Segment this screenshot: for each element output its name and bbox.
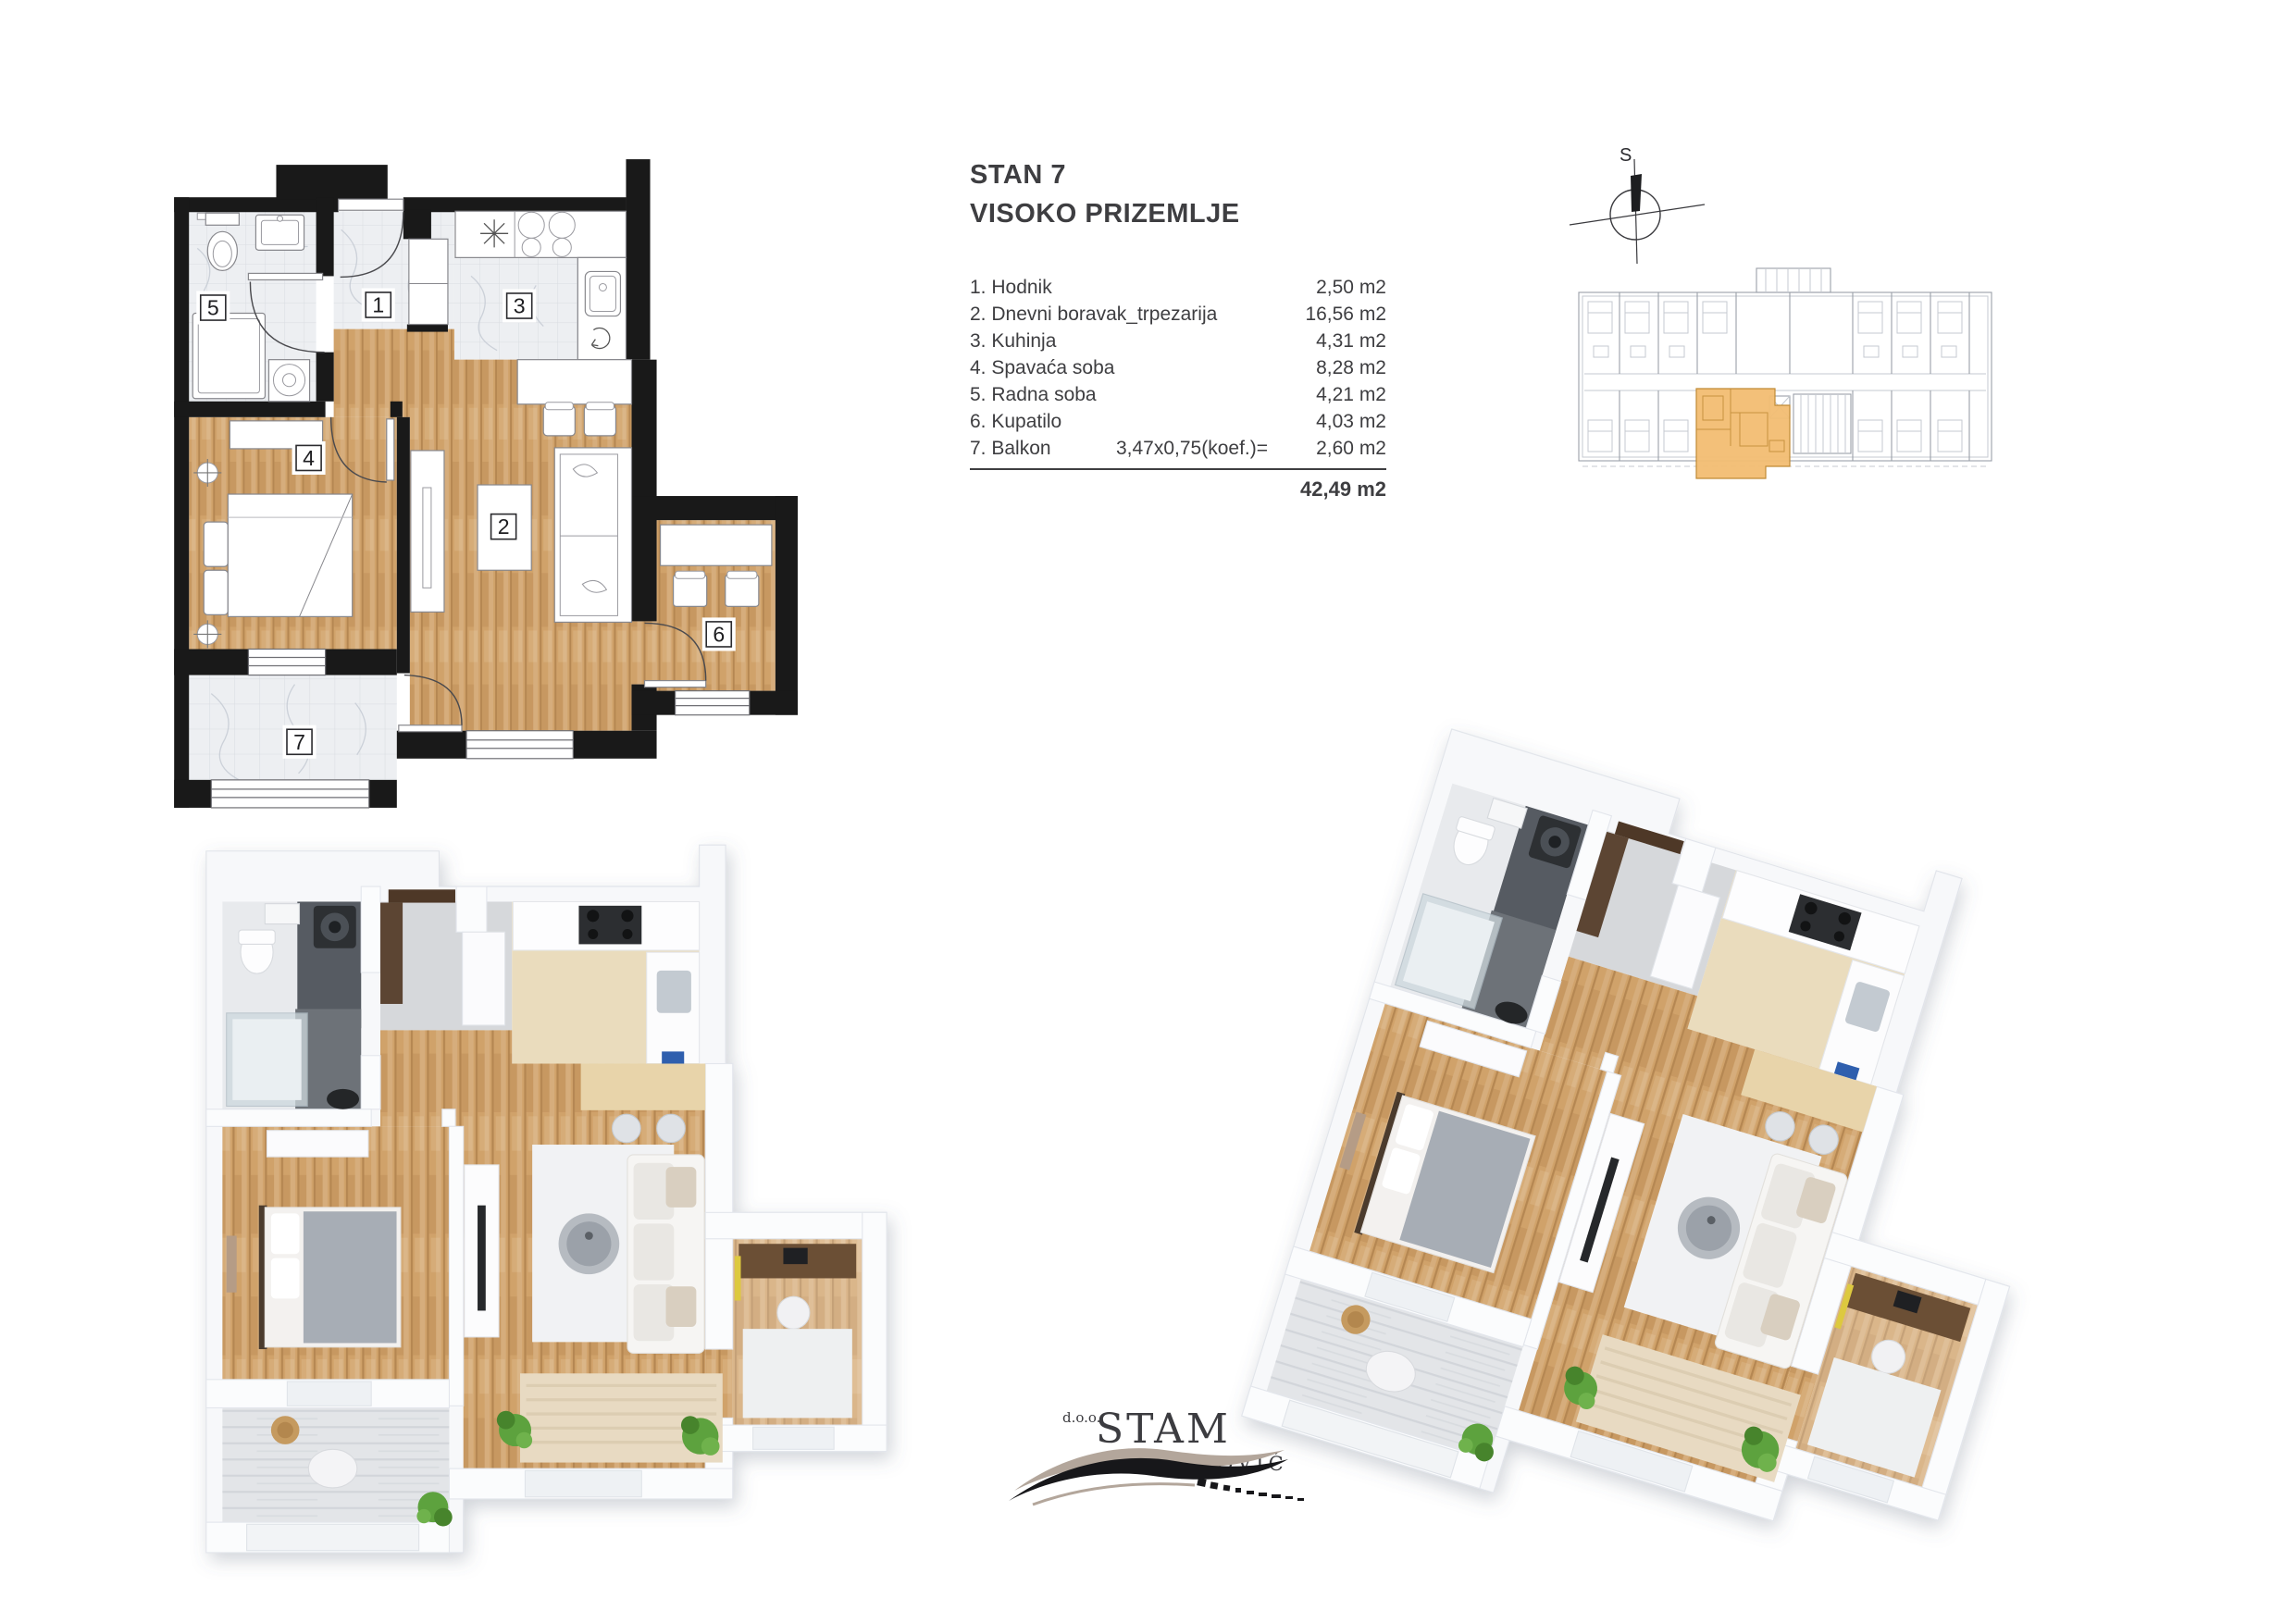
logo-trail-dots (1197, 1478, 1304, 1501)
svg-text:5: 5 (207, 296, 219, 320)
svg-text:2: 2 (498, 514, 510, 539)
room-area: 2,50 m2 (1275, 274, 1386, 301)
apartment-sheet: 1 2 3 4 5 6 7 (0, 0, 2296, 1623)
room-dim (1268, 274, 1275, 301)
room-label-5: 5 (196, 291, 230, 324)
room-row: 7. Balkon 3,47x0,75(koef.)= 2,60 m2 (970, 435, 1386, 462)
room-dim (1268, 408, 1275, 435)
floorplan-2d: 1 2 3 4 5 6 7 (109, 128, 814, 828)
unit-highlight (1696, 389, 1790, 478)
building-overview (1575, 265, 1993, 487)
room-area: 4,03 m2 (1275, 408, 1386, 435)
room-row: 4. Spavaća soba 8,28 m2 (970, 354, 1386, 381)
room-label-1: 1 (362, 288, 395, 321)
room-list: 1. Hodnik 2,50 m2 2. Dnevni boravak_trpe… (970, 274, 1386, 462)
room-label-6: 6 (702, 617, 736, 650)
room-name: 4. Spavaća soba (970, 354, 1114, 381)
room-area: 8,28 m2 (1275, 354, 1386, 381)
render-3d-rotated (1177, 717, 2158, 1592)
total-area: 42,49 m2 (970, 477, 1386, 502)
apartment-title: STAN 7 (970, 155, 1386, 194)
info-panel: STAN 7 VISOKO PRIZEMLJE 1. Hodnik 2,50 m… (970, 155, 1386, 502)
svg-text:7: 7 (293, 730, 305, 754)
room-row: 6. Kupatilo 4,03 m2 (970, 408, 1386, 435)
room-name: 2. Dnevni boravak_trpezarija (970, 301, 1217, 328)
svg-text:3: 3 (514, 294, 526, 318)
room-area: 16,56 m2 (1275, 301, 1386, 328)
vent-icon (480, 219, 508, 247)
room-dim: 3,47x0,75(koef.)= (1116, 435, 1275, 462)
room-name: 6. Kupatilo (970, 408, 1061, 435)
room-area: 4,21 m2 (1275, 381, 1386, 408)
room-name: 1. Hodnik (970, 274, 1052, 301)
svg-text:4: 4 (303, 446, 315, 470)
compass-needle (1631, 174, 1642, 212)
room-row: 3. Kuhinja 4,31 m2 (970, 328, 1386, 354)
total-divider (970, 468, 1386, 470)
room-label-4: 4 (292, 441, 326, 475)
room-dim (1268, 381, 1275, 408)
room-dim (1268, 301, 1275, 328)
compass: S (1564, 137, 1712, 266)
room-name: 5. Radna soba (970, 381, 1097, 408)
room-name: 7. Balkon (970, 435, 1051, 462)
room-label-3: 3 (503, 289, 536, 322)
room-name: 3. Kuhinja (970, 328, 1056, 354)
logo-name: STAM (1096, 1406, 1231, 1453)
room-label-2: 2 (487, 510, 520, 543)
room-area: 2,60 m2 (1275, 435, 1386, 462)
compass-label: S (1620, 145, 1632, 166)
room-dim (1268, 328, 1275, 354)
svg-text:6: 6 (713, 622, 725, 646)
room-dim (1268, 354, 1275, 381)
room-row: 5. Radna soba 4,21 m2 (970, 381, 1386, 408)
floor-title: VISOKO PRIZEMLJE (970, 194, 1386, 233)
room-row: 2. Dnevni boravak_trpezarija 16,56 m2 (970, 301, 1386, 328)
svg-text:1: 1 (372, 293, 384, 317)
render-3d-top (135, 811, 905, 1575)
room-label-7: 7 (282, 725, 316, 759)
room-row: 1. Hodnik 2,50 m2 (970, 274, 1386, 301)
company-logo: d.o.o. STAM PETROVIĆ (1005, 1383, 1315, 1527)
logo-swoosh (1009, 1448, 1304, 1505)
room-area: 4,31 m2 (1275, 328, 1386, 354)
